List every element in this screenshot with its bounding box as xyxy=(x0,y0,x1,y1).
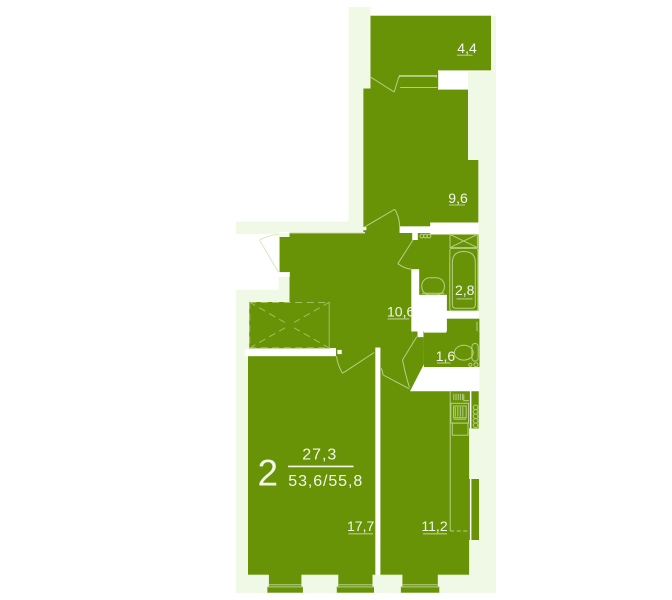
svg-text:53,6/55,8: 53,6/55,8 xyxy=(288,473,363,490)
svg-text:2,8: 2,8 xyxy=(455,282,475,298)
svg-text:11,2: 11,2 xyxy=(421,518,447,534)
svg-text:10,6: 10,6 xyxy=(387,304,414,320)
svg-text:2: 2 xyxy=(258,453,279,494)
svg-text:9,6: 9,6 xyxy=(448,190,468,206)
svg-text:17,7: 17,7 xyxy=(347,518,374,534)
svg-text:27,3: 27,3 xyxy=(302,446,337,463)
svg-text:4,4: 4,4 xyxy=(457,40,477,56)
svg-text:1,6: 1,6 xyxy=(436,348,456,364)
